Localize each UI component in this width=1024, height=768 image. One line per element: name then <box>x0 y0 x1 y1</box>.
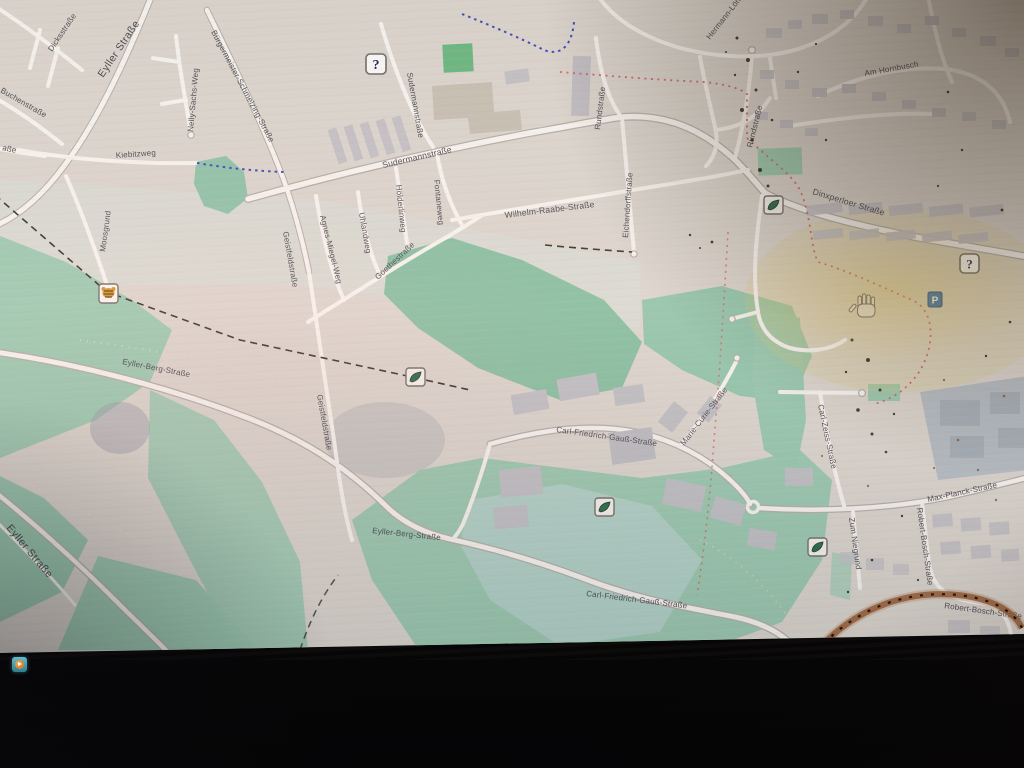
street-label: Hermann-Löns-Straße <box>704 0 762 41</box>
map-viewport[interactable]: Dicksstraße Eyller Straße Buchenstraße a… <box>0 0 1024 660</box>
street-label: Carl-Zeiss-Straße <box>816 404 839 470</box>
street-label: Dicksstraße <box>46 11 78 53</box>
street-label: Sudermannstraße <box>405 72 425 139</box>
street-label-fragment: aße <box>2 143 18 155</box>
smudge-arc <box>816 594 1022 652</box>
screen-photo: Dicksstraße Eyller Straße Buchenstraße a… <box>0 0 1024 768</box>
street-label: Max-Planck-Straße <box>927 480 999 504</box>
street-label: Am Hornbusch <box>864 60 919 78</box>
leaf-poi-icon[interactable] <box>808 538 827 556</box>
street-label: Rundstraße <box>745 104 764 149</box>
svg-text:?: ? <box>966 257 973 272</box>
street-label: Marie-Curie-Straße <box>678 385 729 447</box>
help-icon[interactable]: ? <box>960 254 979 273</box>
play-arrow-icon <box>18 662 22 666</box>
svg-text:?: ? <box>373 58 380 73</box>
leaf-poi-icon[interactable] <box>595 498 614 516</box>
street-label: Robert-Bosch-Straße <box>915 507 935 586</box>
leaf-poi-icon[interactable] <box>406 368 425 386</box>
street-label: Nelly-Sachs-Weg <box>186 68 201 132</box>
help-icon[interactable]: ? <box>366 54 386 74</box>
leaf-poi-icon[interactable] <box>764 196 783 214</box>
street-label: Bürgermeister-Schmelzing-Straße <box>209 29 276 144</box>
parking-icon[interactable]: P <box>928 292 942 307</box>
taskbar-app-icon[interactable] <box>12 657 27 672</box>
street-label: Kiebitzweg <box>116 148 157 160</box>
zoo-icon[interactable] <box>99 284 118 303</box>
svg-text:P: P <box>932 296 939 307</box>
